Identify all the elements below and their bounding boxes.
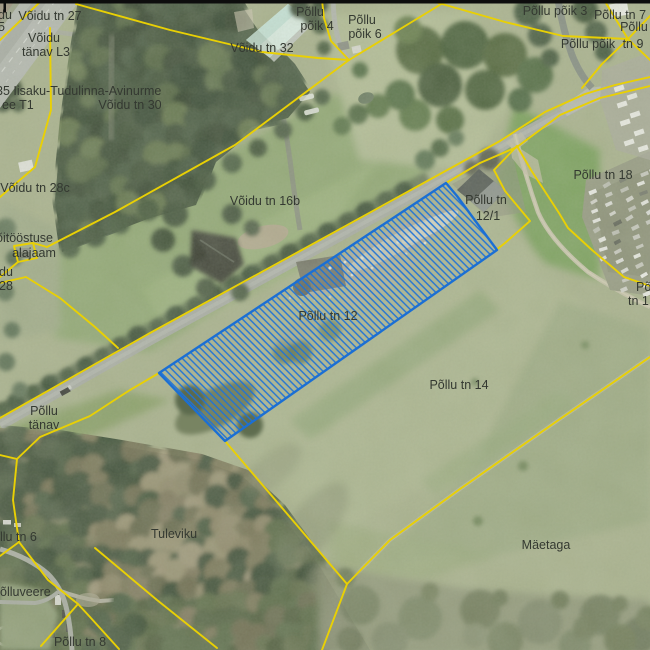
svg-text:Võidu tn 28c: Võidu tn 28c [0, 181, 70, 195]
svg-text:Põllu tn 12: Põllu tn 12 [298, 309, 357, 323]
svg-text:Võidu tn 30: Võidu tn 30 [98, 98, 161, 112]
svg-text:5: 5 [0, 20, 5, 34]
svg-text:12/1: 12/1 [476, 209, 500, 223]
svg-text:Võidu: Võidu [28, 31, 60, 45]
svg-text:tn 9: tn 9 [623, 37, 644, 51]
svg-text:Võidu tn 27: Võidu tn 27 [18, 9, 81, 23]
svg-text:Põllu tn 14: Põllu tn 14 [429, 378, 488, 392]
svg-text:põik 4: põik 4 [300, 19, 333, 33]
svg-text:tänav L3: tänav L3 [22, 45, 70, 59]
svg-text:Põllu: Põllu [30, 404, 58, 418]
svg-text:Põllu tn 18: Põllu tn 18 [573, 168, 632, 182]
svg-text:Põllu tn 8: Põllu tn 8 [54, 635, 106, 649]
svg-text:õitööstuse: õitööstuse [0, 231, 53, 245]
svg-text:35 Iisaku-Tudulinna-Avinurme: 35 Iisaku-Tudulinna-Avinurme [0, 84, 161, 98]
svg-text:Põllu: Põllu [296, 5, 324, 19]
svg-text:Põllu põik: Põllu põik [561, 37, 616, 51]
svg-text:llu tn 6: llu tn 6 [0, 530, 37, 544]
svg-text:Mäetaga: Mäetaga [522, 538, 571, 552]
svg-text:põik 6: põik 6 [348, 27, 381, 41]
svg-text:Põllu põik 3: Põllu põik 3 [523, 4, 588, 18]
svg-text:ee T1: ee T1 [2, 98, 34, 112]
svg-text:Võidu tn 16b: Võidu tn 16b [230, 194, 300, 208]
svg-text:tänav: tänav [29, 418, 60, 432]
svg-text:28: 28 [0, 279, 13, 293]
svg-text:Tuleviku: Tuleviku [151, 527, 197, 541]
svg-text:õlluveere: õlluveere [0, 585, 51, 599]
svg-text:du: du [0, 265, 13, 279]
svg-text:tn 1: tn 1 [628, 294, 649, 308]
svg-text:Põllu tn: Põllu tn [465, 193, 507, 207]
svg-text:Võidu tn 32: Võidu tn 32 [230, 41, 293, 55]
svg-text:alajaam: alajaam [12, 246, 56, 260]
svg-text:Põllu: Põllu [348, 13, 376, 27]
svg-text:Põ: Põ [636, 280, 650, 294]
svg-text:Põllu: Põllu [620, 20, 648, 34]
